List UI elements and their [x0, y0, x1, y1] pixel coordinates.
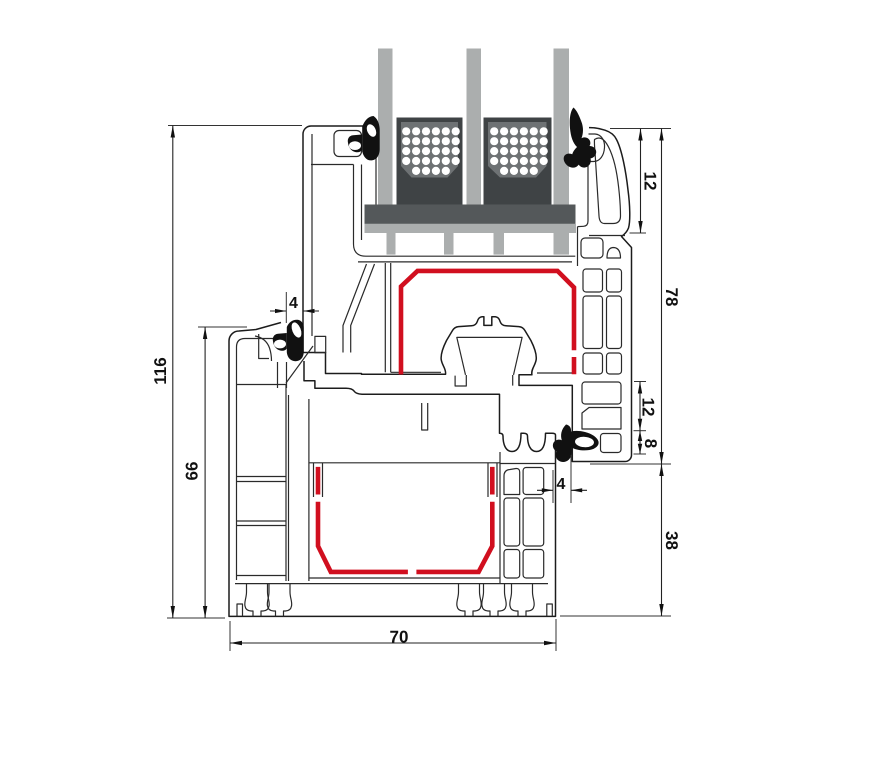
svg-text:12: 12 [639, 398, 658, 417]
svg-text:78: 78 [662, 288, 681, 307]
svg-text:4: 4 [289, 295, 298, 312]
svg-text:38: 38 [662, 531, 681, 550]
svg-text:12: 12 [641, 172, 660, 191]
svg-text:66: 66 [183, 462, 202, 481]
svg-text:4: 4 [557, 476, 566, 493]
svg-text:8: 8 [641, 439, 660, 448]
svg-text:70: 70 [390, 628, 409, 647]
svg-text:116: 116 [151, 357, 170, 384]
